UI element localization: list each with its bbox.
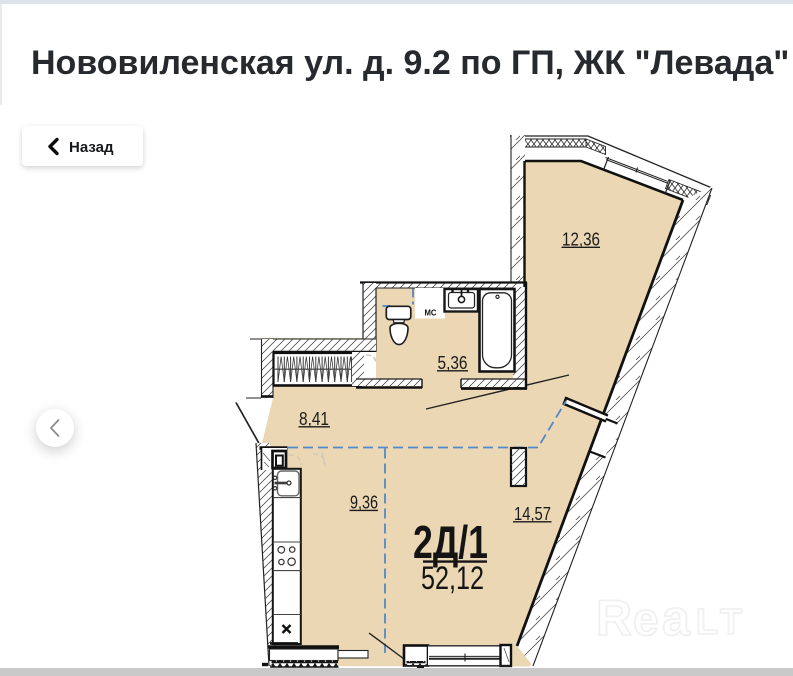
svg-text:14,57: 14,57 [514, 504, 551, 524]
svg-text:8,41: 8,41 [299, 409, 329, 429]
svg-text:МС: МС [425, 308, 437, 318]
svg-text:12,36: 12,36 [562, 230, 600, 250]
svg-text:9,36: 9,36 [350, 493, 378, 513]
svg-text:52,12: 52,12 [421, 560, 484, 596]
svg-text:5,36: 5,36 [438, 353, 468, 373]
svg-text:R: R [596, 590, 632, 646]
svg-text:L: L [696, 601, 718, 642]
svg-text:e: e [633, 593, 659, 645]
svg-text:a: a [662, 590, 691, 646]
svg-text:T: T [720, 601, 742, 642]
